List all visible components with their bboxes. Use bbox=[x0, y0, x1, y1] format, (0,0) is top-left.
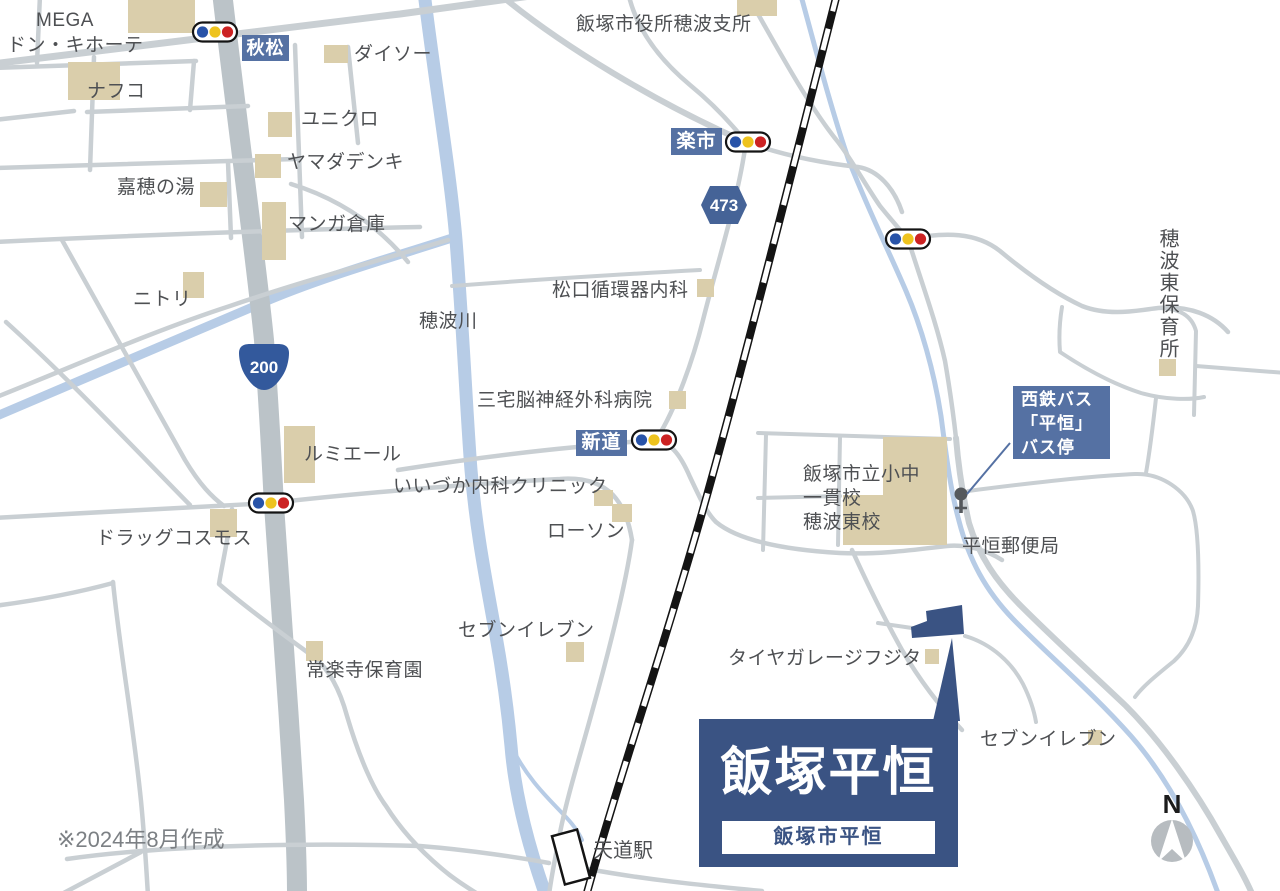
building bbox=[284, 426, 315, 483]
traffic-light-lamp bbox=[222, 26, 233, 37]
bus-stop-tag-line3: バス停 bbox=[1021, 436, 1110, 460]
building bbox=[255, 154, 281, 178]
traffic-light-icon bbox=[726, 133, 770, 152]
site-callout-subtitle: 飯塚市平恒 bbox=[722, 821, 935, 854]
building bbox=[1088, 730, 1102, 745]
area-tag-akimatsu: 秋松 bbox=[242, 35, 289, 61]
building bbox=[594, 490, 613, 506]
traffic-light-lamp bbox=[915, 233, 926, 244]
building bbox=[737, 0, 777, 16]
road-path bbox=[295, 45, 302, 237]
traffic-light-lamp bbox=[209, 26, 220, 37]
traffic-light-lamp bbox=[730, 136, 741, 147]
building bbox=[128, 0, 195, 33]
building bbox=[306, 641, 323, 661]
compass-north-letter: N bbox=[1163, 789, 1182, 819]
map-canvas: 200473N MEGAドン・キホーテナフコダイソーユニクロヤマダデンキ嘉穂の湯… bbox=[0, 0, 1280, 891]
road-path bbox=[291, 184, 408, 262]
station-label: 天道駅 bbox=[593, 834, 653, 863]
traffic-light-lamp bbox=[636, 434, 647, 445]
bus-stop-head bbox=[955, 488, 968, 501]
road-path bbox=[838, 437, 840, 545]
building bbox=[200, 182, 227, 207]
traffic-light-lamp bbox=[278, 497, 289, 508]
river-path bbox=[0, 238, 452, 418]
shield-number: 473 bbox=[710, 196, 738, 215]
road-path bbox=[37, 0, 40, 63]
shield-number: 200 bbox=[250, 358, 278, 377]
bus-stop-tag: 西鉄バス 「平恒」 バス停 bbox=[1013, 386, 1110, 459]
road-path bbox=[588, 869, 762, 891]
traffic-light-icon bbox=[886, 230, 930, 249]
national-route-200-shield: 200 bbox=[239, 344, 289, 390]
road-path bbox=[0, 583, 113, 606]
bus-stop-tag-line1: 西鉄バス bbox=[1021, 388, 1110, 412]
road-path bbox=[348, 47, 358, 143]
building bbox=[183, 272, 204, 298]
road-path bbox=[452, 270, 700, 286]
road-path bbox=[87, 106, 248, 112]
site-callout: 飯塚平恒 飯塚市平恒 bbox=[699, 719, 958, 867]
traffic-light-lamp bbox=[265, 497, 276, 508]
traffic-light-icon bbox=[193, 23, 237, 42]
created-date-note: ※2024年8月作成 bbox=[57, 822, 225, 854]
road-path bbox=[908, 239, 956, 438]
station-rect bbox=[552, 829, 590, 884]
building bbox=[925, 649, 939, 664]
site-location-polygon bbox=[911, 605, 964, 638]
bus-stop-tag-line2: 「平恒」 bbox=[1021, 412, 1110, 436]
traffic-light-lamp bbox=[197, 26, 208, 37]
bus-stop-pole bbox=[959, 499, 963, 513]
traffic-light-lamp bbox=[648, 434, 659, 445]
river-path bbox=[424, 0, 546, 891]
school-building bbox=[843, 437, 947, 545]
road-path bbox=[628, 0, 746, 142]
traffic-light-lamp bbox=[742, 136, 753, 147]
station-symbol bbox=[552, 829, 590, 884]
traffic-light-lamp bbox=[890, 233, 901, 244]
road-path bbox=[0, 479, 632, 540]
traffic-light-lamp bbox=[253, 497, 264, 508]
area-tag-rakuichi: 楽市 bbox=[671, 128, 722, 155]
road-path bbox=[878, 623, 912, 628]
building bbox=[669, 391, 686, 409]
traffic-light-lamp bbox=[755, 136, 766, 147]
road-path bbox=[497, 0, 746, 142]
traffic-light-icon bbox=[632, 431, 676, 450]
building bbox=[612, 504, 632, 522]
site-callout-title: 飯塚平恒 bbox=[699, 730, 958, 805]
road-path bbox=[0, 111, 74, 120]
road-path bbox=[1135, 606, 1198, 697]
traffic-light-lamp bbox=[661, 434, 672, 445]
road-path bbox=[219, 509, 481, 891]
road-path bbox=[763, 435, 766, 550]
road-path bbox=[956, 438, 1253, 891]
building bbox=[697, 279, 714, 297]
road-path bbox=[228, 162, 231, 238]
road-path bbox=[758, 496, 840, 498]
road-path bbox=[1196, 366, 1280, 373]
building bbox=[324, 45, 348, 63]
road-path bbox=[190, 61, 194, 110]
traffic-light-icon bbox=[249, 494, 293, 513]
road-path bbox=[1146, 398, 1156, 473]
building bbox=[68, 62, 120, 100]
traffic-light-lamp bbox=[902, 233, 913, 244]
nursery-label-vertical: 穂波東保育所 bbox=[1153, 228, 1182, 360]
road-path bbox=[965, 636, 1036, 722]
building bbox=[566, 642, 584, 662]
building bbox=[262, 202, 286, 260]
building bbox=[268, 112, 292, 137]
prefectural-route-473-shield: 473 bbox=[701, 186, 747, 224]
area-tag-shindo: 新道 bbox=[576, 430, 627, 456]
building bbox=[210, 509, 237, 537]
building bbox=[1159, 359, 1176, 376]
